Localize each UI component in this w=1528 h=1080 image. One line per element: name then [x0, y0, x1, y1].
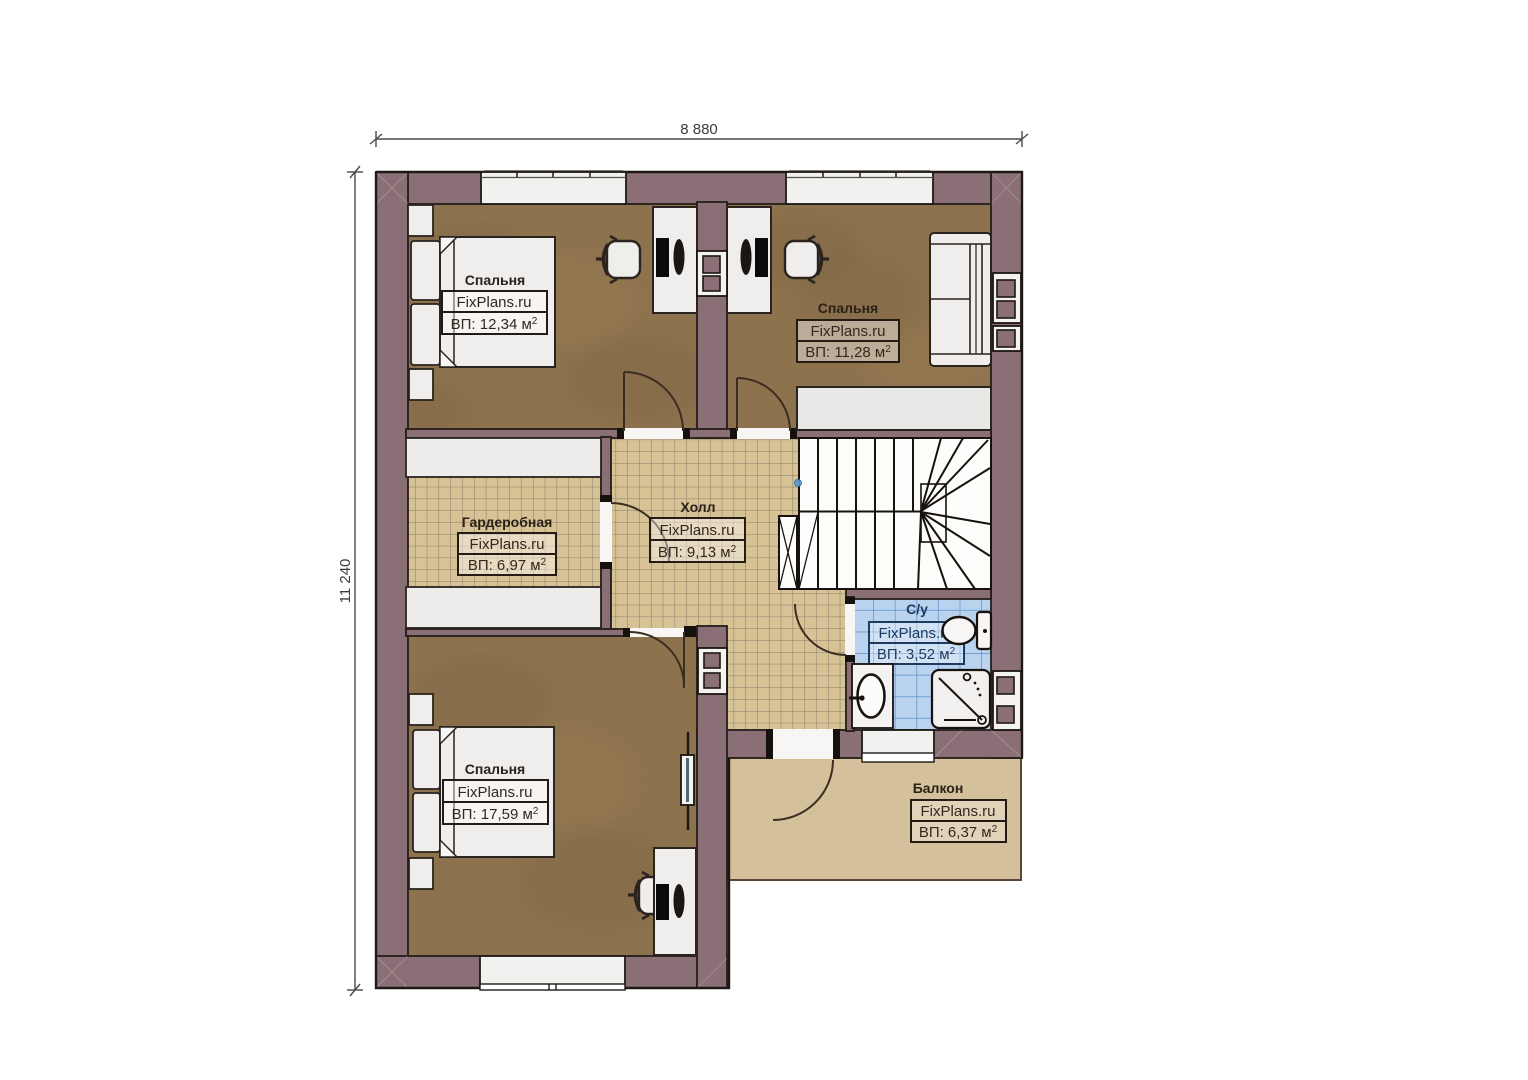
- svg-text:FixPlans.ru: FixPlans.ru: [456, 294, 531, 311]
- svg-text:С/у: С/у: [906, 601, 928, 617]
- svg-text:ВП: 11,28 м2: ВП: 11,28 м2: [805, 344, 891, 361]
- svg-text:FixPlans.ru: FixPlans.ru: [810, 323, 885, 340]
- svg-text:Спальня: Спальня: [465, 761, 525, 777]
- svg-text:FixPlans.ru: FixPlans.ru: [920, 803, 995, 820]
- svg-text:11 240: 11 240: [337, 559, 354, 604]
- svg-text:ВП: 12,34 м2: ВП: 12,34 м2: [451, 316, 538, 333]
- svg-text:Спальня: Спальня: [465, 272, 525, 288]
- svg-text:FixPlans.ru: FixPlans.ru: [457, 784, 532, 801]
- svg-text:ВП: 9,13 м2: ВП: 9,13 м2: [658, 544, 737, 561]
- svg-text:FixPlans.ru: FixPlans.ru: [659, 522, 734, 539]
- svg-text:Холл: Холл: [680, 499, 715, 515]
- svg-text:ВП: 3,52 м2: ВП: 3,52 м2: [877, 646, 956, 663]
- svg-text:Спальня: Спальня: [818, 300, 878, 316]
- svg-text:8 880: 8 880: [680, 121, 718, 138]
- svg-text:ВП: 17,59 м2: ВП: 17,59 м2: [452, 806, 539, 823]
- svg-text:ВП: 6,37 м2: ВП: 6,37 м2: [919, 824, 998, 841]
- svg-text:Гардеробная: Гардеробная: [462, 514, 553, 530]
- svg-text:Балкон: Балкон: [913, 780, 964, 796]
- svg-text:FixPlans.ru: FixPlans.ru: [469, 536, 544, 553]
- svg-text:ВП: 6,97 м2: ВП: 6,97 м2: [468, 557, 547, 574]
